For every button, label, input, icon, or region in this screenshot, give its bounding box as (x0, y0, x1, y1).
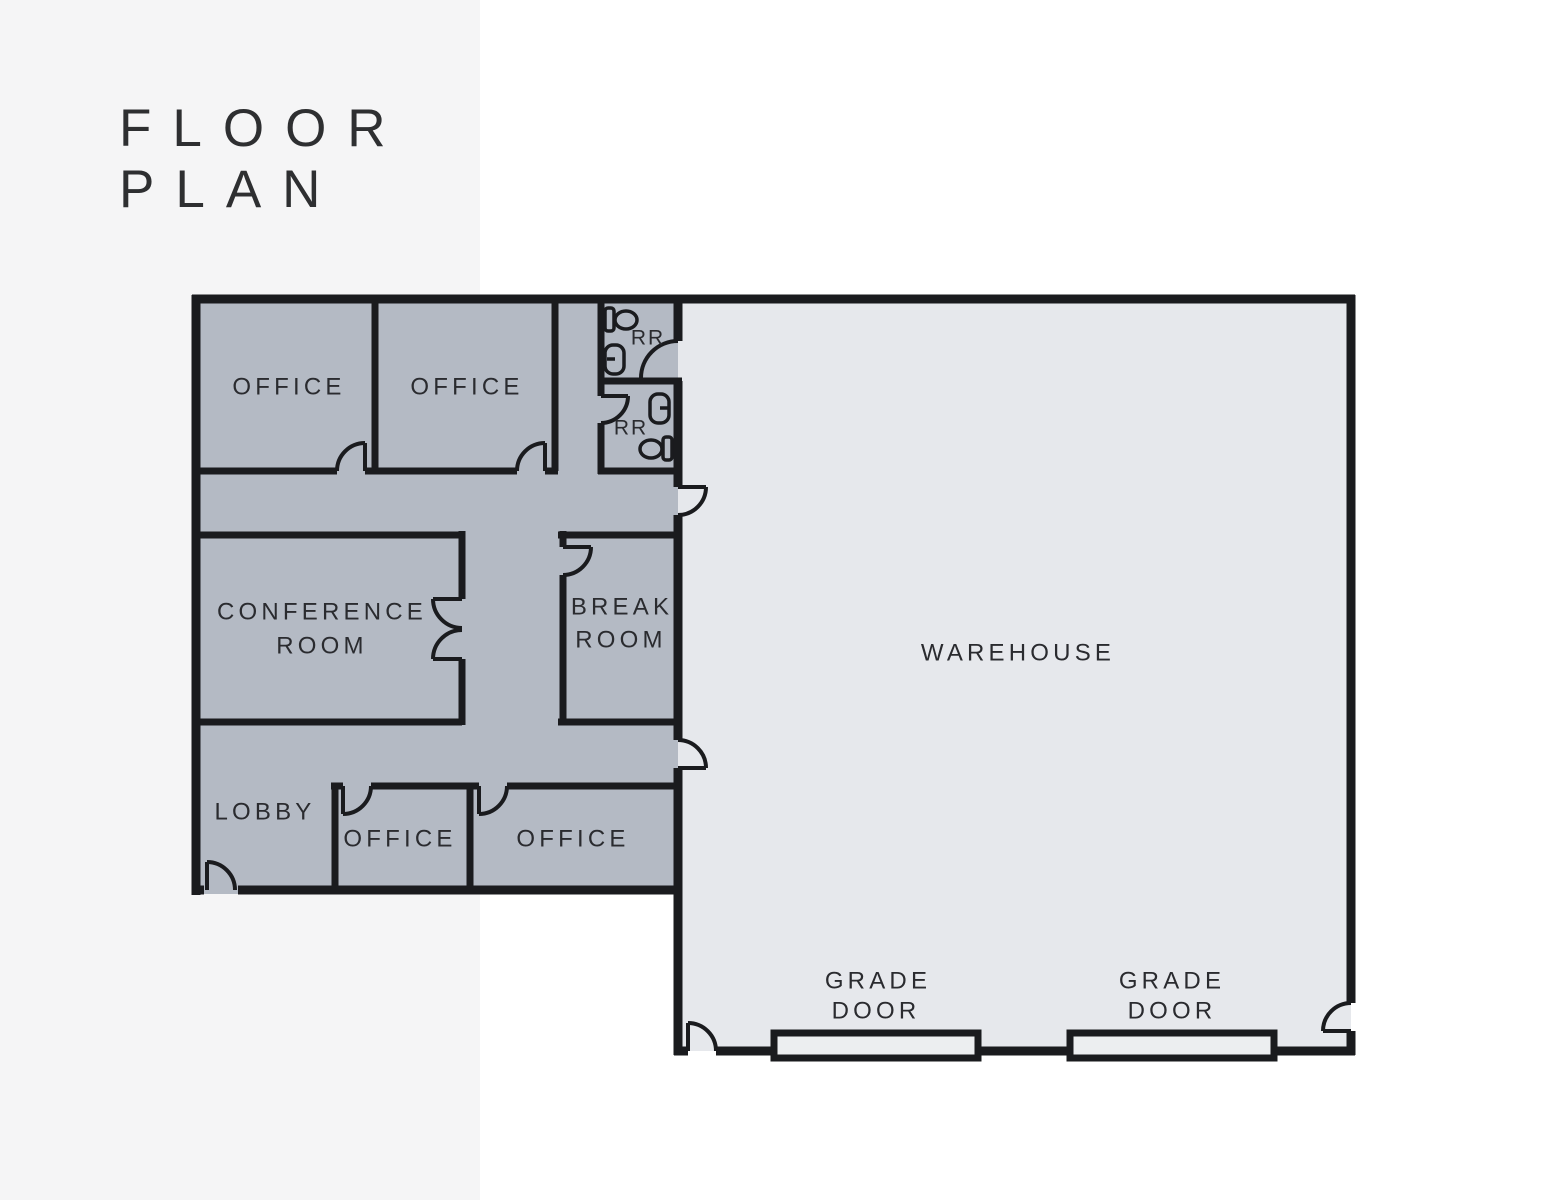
floor-plan: OFFICE OFFICE RR RR CONFERENCE ROOM BREA… (0, 0, 1553, 1200)
label-grade-door-right-line1: GRADE (1119, 967, 1225, 994)
room-label-office-bottom-left: OFFICE (343, 825, 456, 852)
room-label-break-line1: BREAK (571, 593, 673, 620)
label-grade-door-right-line2: DOOR (1128, 997, 1217, 1024)
room-label-warehouse: WAREHOUSE (921, 639, 1115, 666)
label-grade-door-left-line2: DOOR (832, 997, 921, 1024)
grade-door-right (1070, 1033, 1274, 1058)
room-label-office-top-left: OFFICE (232, 373, 345, 400)
room-label-office-top-right: OFFICE (410, 373, 523, 400)
room-label-conference-line1: CONFERENCE (217, 598, 427, 625)
label-grade-door-left-line1: GRADE (825, 967, 931, 994)
room-label-lobby: LOBBY (214, 798, 315, 825)
room-label-office-bottom-right: OFFICE (516, 825, 629, 852)
room-label-conference-line2: ROOM (276, 632, 367, 659)
room-label-break-line2: ROOM (575, 626, 666, 653)
room-label-rr-lower: RR (614, 417, 648, 440)
room-label-rr-upper: RR (631, 327, 665, 350)
warehouse-floor (678, 299, 1351, 1051)
grade-door-left (774, 1033, 978, 1058)
